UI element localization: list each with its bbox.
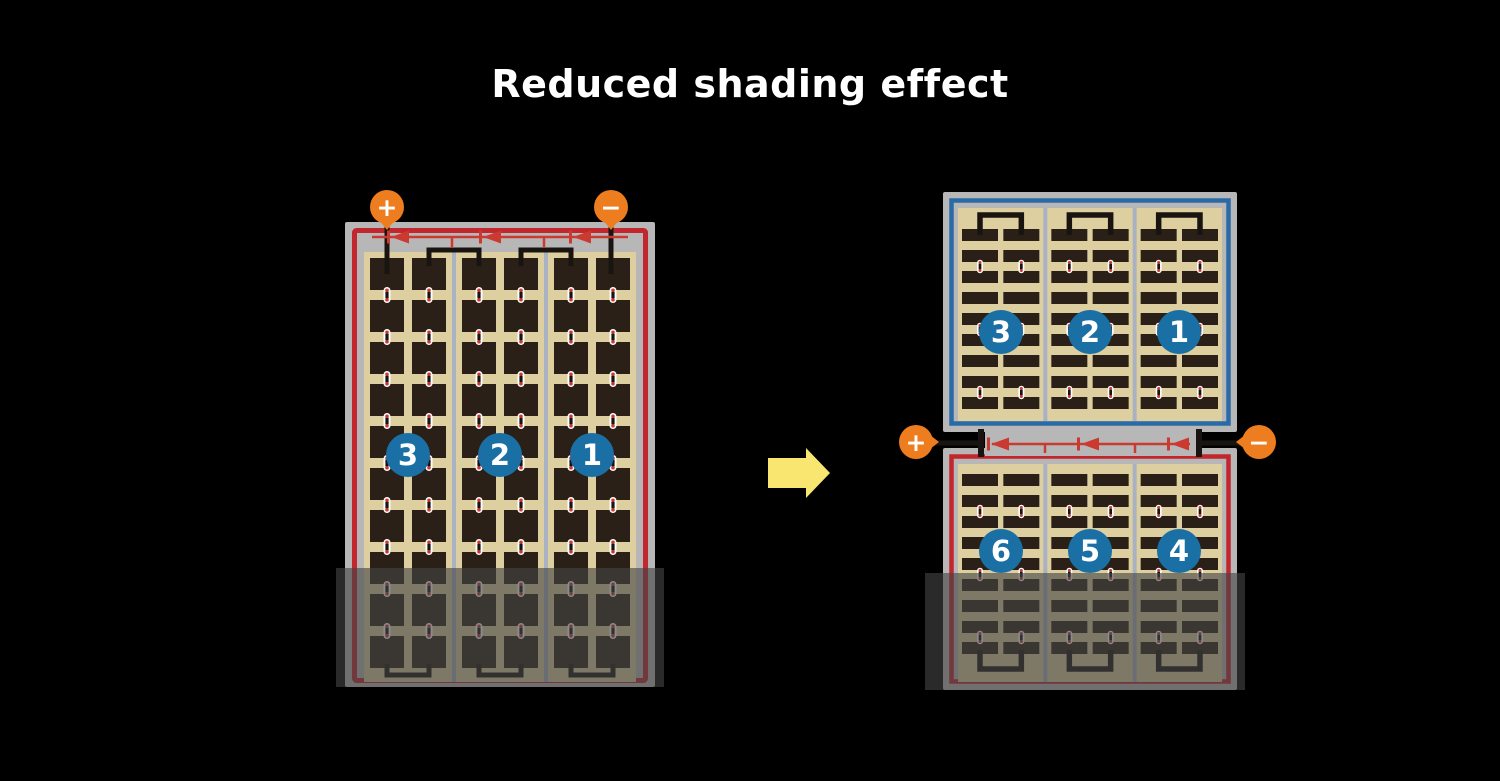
transition-arrow-icon — [768, 448, 830, 498]
arrow-shaft — [768, 458, 806, 488]
terminal-tip — [1236, 435, 1245, 449]
string-badge: 6 — [979, 529, 1023, 573]
string-badge: 3 — [979, 310, 1023, 354]
minus-icon: − — [601, 195, 622, 220]
string-badge: 5 — [1068, 529, 1112, 573]
positive-terminal-right-panel: + — [899, 425, 933, 459]
negative-terminal-right-panel: − — [1242, 425, 1276, 459]
string-badge: 4 — [1157, 529, 1201, 573]
string-badge: 2 — [478, 433, 522, 477]
terminal-tip — [930, 435, 939, 449]
diagram-canvas: Reduced shading effect + − 3 2 1 + − 3 2… — [0, 0, 1500, 781]
terminal-tip — [604, 221, 618, 230]
string-badge: 3 — [386, 433, 430, 477]
plus-icon: + — [906, 430, 927, 455]
string-badge: 1 — [1157, 310, 1201, 354]
half-cut-panel-graphic — [890, 180, 1290, 700]
string-badge: 2 — [1068, 310, 1112, 354]
arrow-head — [806, 448, 830, 498]
string-badge: 1 — [570, 433, 614, 477]
positive-terminal-left-panel: + — [370, 190, 404, 224]
negative-terminal-left-panel: − — [594, 190, 628, 224]
minus-icon: − — [1249, 430, 1270, 455]
plus-icon: + — [377, 195, 398, 220]
page-title: Reduced shading effect — [0, 62, 1500, 106]
terminal-tip — [380, 221, 394, 230]
